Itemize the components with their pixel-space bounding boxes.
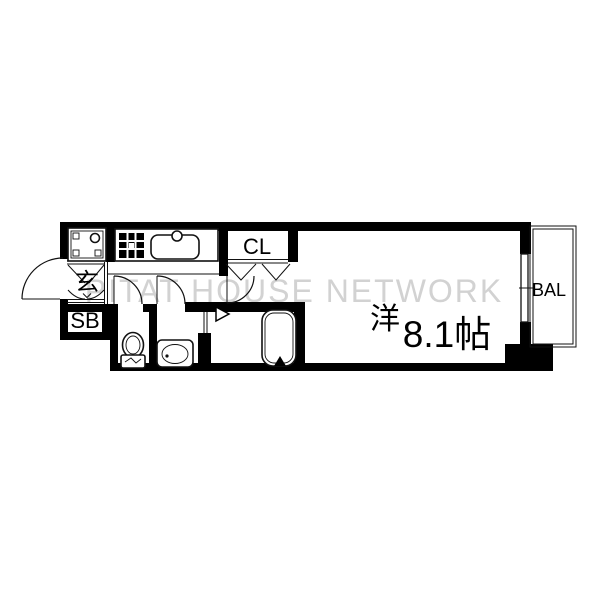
toilet-left-wall (110, 304, 118, 371)
main-room: 洋 8.1帖 (370, 303, 491, 355)
left-wall-upper (60, 222, 68, 259)
entrance-label: 玄 (75, 269, 99, 296)
laundry-pan-icon (68, 228, 106, 261)
shoebox-bottom-wall (60, 332, 110, 340)
washbasin-icon (157, 340, 193, 367)
balcony-label: BAL (532, 280, 566, 300)
kitchen (115, 229, 218, 261)
shoe-box: SB (70, 308, 99, 333)
shoe-box-label: SB (70, 308, 99, 333)
right-wall-lower (520, 322, 531, 346)
toilet-icon (121, 333, 145, 369)
closet-right-wall (288, 228, 298, 262)
bathtub-icon (262, 310, 296, 366)
stove-icon (119, 233, 144, 258)
closet-label: CL (243, 234, 271, 259)
entrance: 玄 (22, 258, 108, 304)
floor-plan-svg: PITAT HOUSE NETWORK BAL (0, 0, 600, 600)
main-room-size-label: 8.1帖 (403, 314, 491, 355)
main-room-type-label: 洋 (370, 303, 400, 336)
closet-left-wall (219, 228, 228, 276)
right-wall-upper (520, 222, 531, 254)
laundry-kitchen-divider-wall (106, 228, 115, 262)
corner-wall-block (505, 344, 553, 371)
kitchen-sink-icon (151, 231, 199, 259)
floor-plan-canvas: PITAT HOUSE NETWORK BAL (0, 0, 600, 600)
bathroom (216, 307, 296, 366)
entrance-door-arc-icon (22, 258, 63, 299)
toilet-washroom-divider-wall (149, 304, 157, 371)
